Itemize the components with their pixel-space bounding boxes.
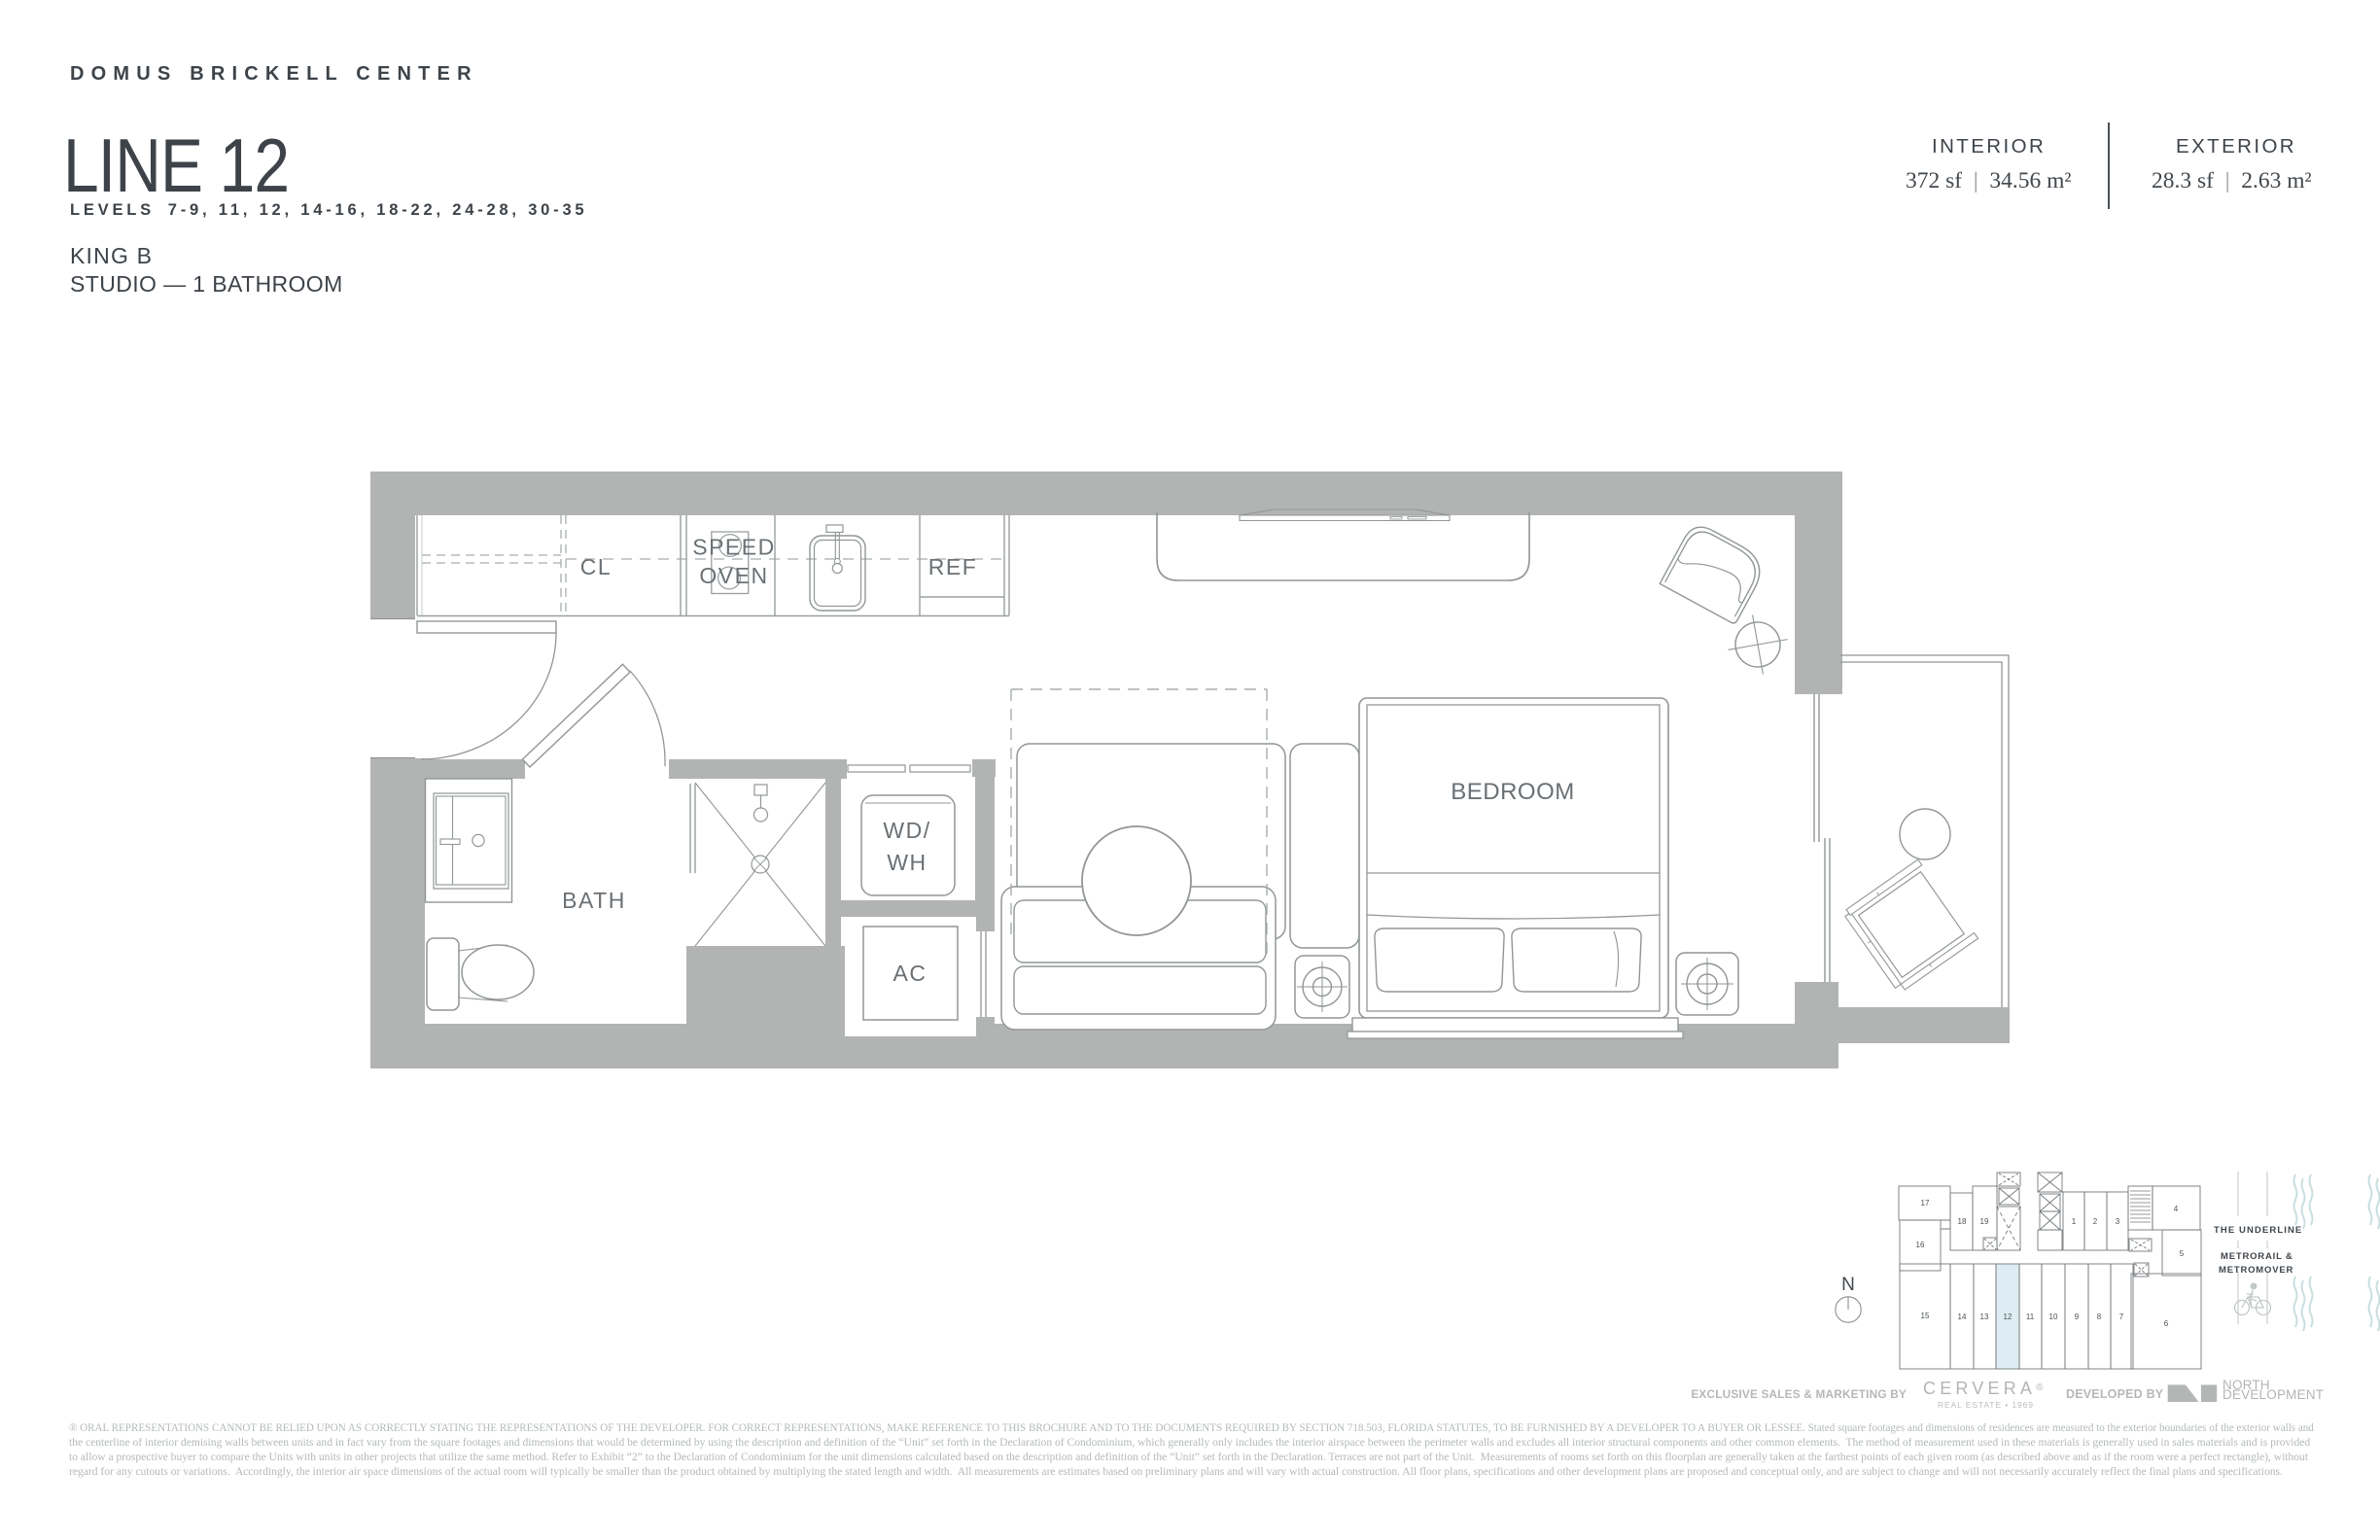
svg-text:7: 7 bbox=[2119, 1312, 2124, 1321]
svg-text:CL: CL bbox=[580, 554, 612, 579]
svg-text:2: 2 bbox=[2093, 1217, 2098, 1226]
svg-text:1: 1 bbox=[2072, 1217, 2077, 1226]
svg-text:12: 12 bbox=[2004, 1312, 2012, 1321]
svg-text:19: 19 bbox=[1980, 1217, 1989, 1226]
svg-text:13: 13 bbox=[1980, 1312, 1989, 1321]
svg-text:WD/: WD/ bbox=[883, 818, 930, 843]
svg-text:METRORAIL &: METRORAIL & bbox=[2221, 1251, 2293, 1262]
svg-text:16: 16 bbox=[1916, 1241, 1925, 1249]
svg-text:14: 14 bbox=[1958, 1312, 1967, 1321]
svg-text:SPEED: SPEED bbox=[692, 535, 775, 560]
svg-text:N: N bbox=[1841, 1275, 1855, 1295]
svg-text:AC: AC bbox=[893, 961, 927, 986]
svg-text:8: 8 bbox=[2097, 1312, 2102, 1321]
svg-text:4: 4 bbox=[2174, 1205, 2179, 1213]
svg-text:METROMOVER: METROMOVER bbox=[2219, 1265, 2293, 1276]
svg-text:5: 5 bbox=[2180, 1249, 2185, 1258]
svg-text:THE UNDERLINE: THE UNDERLINE bbox=[2214, 1225, 2302, 1236]
svg-text:BEDROOM: BEDROOM bbox=[1451, 779, 1575, 805]
svg-text:9: 9 bbox=[2075, 1312, 2080, 1321]
svg-text:6: 6 bbox=[2164, 1319, 2169, 1328]
svg-text:3: 3 bbox=[2116, 1217, 2120, 1226]
svg-text:11: 11 bbox=[2026, 1312, 2035, 1321]
svg-text:BATH: BATH bbox=[562, 888, 626, 913]
svg-text:WH: WH bbox=[887, 850, 927, 875]
svg-text:10: 10 bbox=[2049, 1312, 2058, 1321]
svg-text:15: 15 bbox=[1921, 1312, 1930, 1320]
svg-text:17: 17 bbox=[1921, 1199, 1930, 1207]
svg-text:REF: REF bbox=[928, 554, 978, 579]
svg-text:18: 18 bbox=[1958, 1217, 1967, 1226]
svg-text:OVEN: OVEN bbox=[699, 563, 768, 588]
